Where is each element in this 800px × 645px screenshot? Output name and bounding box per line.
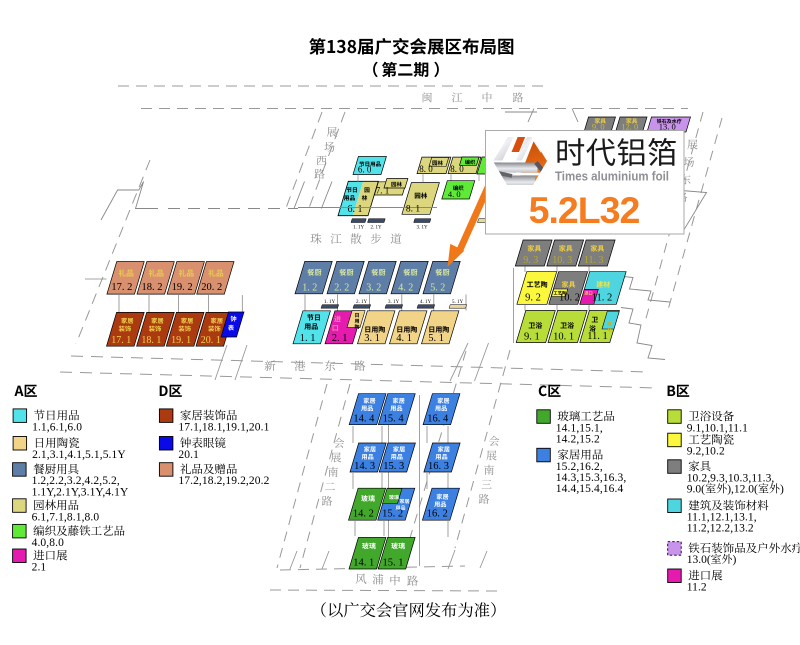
svg-text:4. 1: 4. 1 bbox=[396, 333, 412, 344]
svg-text:16. 3: 16. 3 bbox=[428, 461, 449, 472]
svg-text:14.3,15.3,16.3,: 14.3,15.3,16.3, bbox=[556, 472, 627, 484]
svg-text:17. 2: 17. 2 bbox=[111, 282, 132, 293]
svg-text:11. 2: 11. 2 bbox=[592, 293, 613, 304]
svg-text:5. 2: 5. 2 bbox=[430, 283, 445, 294]
svg-text:8. 1: 8. 1 bbox=[406, 205, 421, 215]
svg-text:14. 3: 14. 3 bbox=[354, 461, 375, 472]
svg-text:14. 1: 14. 1 bbox=[353, 558, 374, 569]
svg-text:Times aluminium foil: Times aluminium foil bbox=[555, 170, 669, 184]
svg-text:14. 2: 14. 2 bbox=[353, 509, 374, 520]
svg-text:18. 2: 18. 2 bbox=[142, 282, 163, 293]
svg-text:15. 2: 15. 2 bbox=[382, 509, 403, 520]
svg-text:2.1: 2.1 bbox=[32, 562, 47, 574]
svg-text:6. 1: 6. 1 bbox=[348, 204, 363, 215]
svg-text:1. 1Y: 1. 1Y bbox=[353, 226, 365, 231]
svg-text:18. 1: 18. 1 bbox=[141, 335, 161, 346]
svg-text:5. 1Y: 5. 1Y bbox=[452, 300, 464, 305]
svg-text:9. 1: 9. 1 bbox=[524, 332, 540, 343]
svg-text:11. 1: 11. 1 bbox=[587, 331, 608, 342]
svg-text:9.2,10.2: 9.2,10.2 bbox=[687, 446, 725, 458]
svg-text:20. 1: 20. 1 bbox=[201, 335, 221, 346]
svg-text:11.2,12.2,13.2: 11.2,12.2,13.2 bbox=[687, 523, 754, 535]
svg-text:10. 1: 10. 1 bbox=[553, 332, 574, 343]
svg-text:11. 3: 11. 3 bbox=[584, 255, 604, 266]
svg-text:10. 3: 10. 3 bbox=[552, 255, 572, 266]
svg-text:19. 2: 19. 2 bbox=[172, 282, 193, 293]
svg-text:20. 2: 20. 2 bbox=[201, 282, 222, 293]
svg-text:11.1,12.1,13.1,: 11.1,12.1,13.1, bbox=[687, 512, 757, 524]
svg-text:10.2,9.3,10.3,11.3,: 10.2,9.3,10.3,11.3, bbox=[687, 472, 775, 484]
svg-text:11.2: 11.2 bbox=[687, 582, 707, 594]
svg-text:15. 3: 15. 3 bbox=[383, 461, 404, 472]
svg-text:1.2,2.2,3.2,4.2,5.2,: 1.2,2.2,3.2,4.2,5.2, bbox=[32, 475, 120, 487]
svg-text:17.1,18.1,19.1,20.1: 17.1,18.1,19.1,20.1 bbox=[178, 421, 269, 433]
svg-text:4.0,8.0: 4.0,8.0 bbox=[32, 537, 64, 549]
svg-text:3. 1Y: 3. 1Y bbox=[416, 226, 428, 231]
svg-text:9.1,10.1,11.1: 9.1,10.1,11.1 bbox=[687, 422, 748, 434]
svg-text:5.2L32: 5.2L32 bbox=[529, 189, 640, 231]
svg-text:17.2,18.2,19.2,20.2: 17.2,18.2,19.2,20.2 bbox=[178, 475, 269, 487]
svg-text:8. 0: 8. 0 bbox=[450, 164, 464, 174]
svg-text:1. 1: 1. 1 bbox=[300, 333, 316, 344]
svg-text:14.4,15.4,16.4: 14.4,15.4,16.4 bbox=[556, 483, 624, 495]
svg-text:20.1: 20.1 bbox=[178, 449, 199, 461]
svg-text:17. 1: 17. 1 bbox=[111, 335, 131, 346]
svg-text:13.0(: 13.0( bbox=[687, 554, 711, 566]
svg-text:3. 1: 3. 1 bbox=[364, 333, 380, 344]
svg-text:8. 0: 8. 0 bbox=[419, 164, 433, 174]
svg-text:2. 1Y: 2. 1Y bbox=[370, 226, 382, 231]
svg-text:10. 2: 10. 2 bbox=[559, 293, 580, 304]
svg-text:2. 1: 2. 1 bbox=[332, 333, 348, 344]
svg-text:1. 2: 1. 2 bbox=[302, 283, 317, 294]
svg-text:9. 3: 9. 3 bbox=[523, 255, 538, 266]
svg-text:15. 1: 15. 1 bbox=[383, 558, 404, 569]
svg-text:6.1,7.1,8.1,8.0: 6.1,7.1,8.1,8.0 bbox=[32, 511, 100, 523]
svg-text:4. 2: 4. 2 bbox=[398, 283, 413, 294]
svg-text:7. 1: 7. 1 bbox=[376, 186, 390, 196]
svg-text:19. 1: 19. 1 bbox=[171, 335, 191, 346]
svg-text:6. 0: 6. 0 bbox=[358, 165, 372, 175]
svg-text:15.2,16.2,: 15.2,16.2, bbox=[556, 461, 603, 473]
svg-text:14.1,15.1,: 14.1,15.1, bbox=[556, 422, 603, 434]
svg-text:1.1,6.1,6.0: 1.1,6.1,6.0 bbox=[32, 421, 82, 433]
svg-text:5. 1: 5. 1 bbox=[428, 333, 444, 344]
svg-text:): ) bbox=[780, 484, 784, 496]
svg-text:4. 0: 4. 0 bbox=[448, 189, 461, 199]
svg-text:1. 1Y: 1. 1Y bbox=[324, 300, 336, 305]
svg-text:2. 1Y: 2. 1Y bbox=[356, 300, 368, 305]
svg-text:9.0(: 9.0( bbox=[687, 484, 705, 496]
svg-text:1.1Y,2.1Y,3.1Y,4.1Y: 1.1Y,2.1Y,3.1Y,4.1Y bbox=[32, 486, 129, 498]
svg-text:9. 2: 9. 2 bbox=[525, 293, 541, 304]
svg-text:3. 1Y: 3. 1Y bbox=[388, 300, 400, 305]
svg-text:16. 4: 16. 4 bbox=[427, 414, 449, 425]
svg-text:14.2,15.2: 14.2,15.2 bbox=[556, 434, 600, 446]
svg-text:4. 1Y: 4. 1Y bbox=[420, 300, 432, 305]
svg-text:2.1,3.1,4.1,5.1,5.1Y: 2.1,3.1,4.1,5.1,5.1Y bbox=[32, 449, 126, 461]
svg-text:),12.0(: ),12.0( bbox=[727, 484, 758, 496]
svg-text:3. 2: 3. 2 bbox=[366, 283, 381, 294]
svg-text:16. 2: 16. 2 bbox=[427, 509, 448, 520]
svg-text:14. 4: 14. 4 bbox=[353, 414, 375, 425]
svg-text:2. 2: 2. 2 bbox=[334, 283, 349, 294]
svg-text:15. 4: 15. 4 bbox=[383, 414, 405, 425]
svg-text:): ) bbox=[733, 554, 737, 566]
